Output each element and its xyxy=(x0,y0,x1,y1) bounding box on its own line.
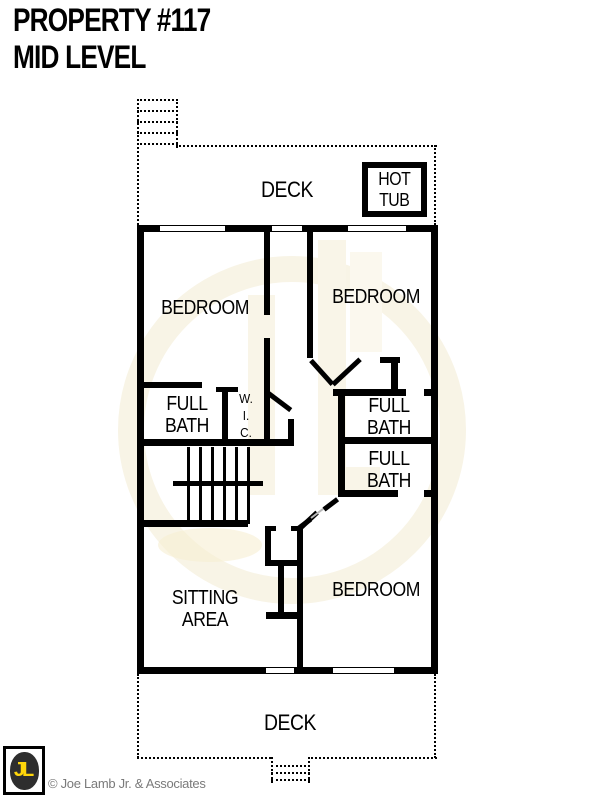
deck-stairs-tread xyxy=(137,121,178,123)
deck-bottom-edge xyxy=(137,757,271,759)
page-title: PROPERTY #117 MID LEVEL xyxy=(13,2,210,76)
bedroom-left-label: BEDROOM xyxy=(156,297,255,319)
outer-wall-left xyxy=(137,225,144,674)
deck-stairs-tread xyxy=(137,110,178,112)
window xyxy=(348,225,406,232)
deck-bottom-stairs-tread xyxy=(271,772,310,774)
stair-rail xyxy=(173,481,263,486)
deck-bottom-label: DECK xyxy=(257,711,324,736)
level-title: MID LEVEL xyxy=(13,39,210,76)
deck-stairs-tread xyxy=(137,132,178,134)
deck-top-right-edge xyxy=(434,145,436,225)
window xyxy=(160,225,225,232)
deck-top-left-edge xyxy=(137,99,139,225)
wall-bedroom-closet-pillar xyxy=(391,357,398,389)
deck-bottom-left-edge xyxy=(137,674,139,758)
hot-tub: HOT TUB xyxy=(362,162,427,217)
outer-wall-right xyxy=(431,225,438,674)
deck-bottom-stairs-tread xyxy=(271,779,310,781)
wall-bath-left-bottom xyxy=(140,439,294,446)
deck-bottom-edge xyxy=(311,757,437,759)
deck-stairs-tread xyxy=(137,99,178,101)
joe-lamb-logo: JL xyxy=(3,746,45,795)
property-title: PROPERTY #117 xyxy=(13,2,210,39)
deck-top-label: DECK xyxy=(256,178,318,203)
logo-oval: JL xyxy=(10,752,39,790)
full-bath-left-label: FULL BATH xyxy=(149,393,225,438)
deck-bottom-stairs-tread xyxy=(271,765,310,767)
hot-tub-label: HOT TUB xyxy=(378,169,410,210)
deck-bottom-right-edge xyxy=(434,674,436,758)
bedroom-right-label: BEDROOM xyxy=(327,286,426,308)
deck-top-edge xyxy=(176,145,437,147)
copyright-text: © Joe Lamb Jr. & Associates xyxy=(48,776,206,791)
wall-bath-left-top xyxy=(140,382,202,388)
floorplan-page: PROPERTY #117 MID LEVEL HOT TUB xyxy=(0,0,600,800)
wic-label: W. I. C. xyxy=(233,391,258,442)
wall-closet-t-horizontal xyxy=(266,612,300,619)
wall-bedroom-divider-upper xyxy=(264,232,270,315)
watermark-tint xyxy=(158,528,262,562)
wall-wic-door-stub xyxy=(288,419,294,439)
wall-sitting-bedroom-divider xyxy=(297,566,303,667)
window xyxy=(333,667,394,674)
full-bath-right-upper-label: FULL BATH xyxy=(350,395,427,440)
logo-initials: JL xyxy=(14,759,34,782)
sitting-area-label: SITTING AREA xyxy=(157,587,254,632)
window xyxy=(272,225,302,232)
bedroom-bottom-label: BEDROOM xyxy=(327,579,426,601)
deck-stairs-edge xyxy=(176,99,178,148)
wall-bedroom-right xyxy=(307,232,313,358)
full-bath-right-lower-label: FULL BATH xyxy=(350,448,427,493)
wall-stairs-bottom xyxy=(140,520,248,527)
window xyxy=(266,667,294,674)
deck-stairs-tread xyxy=(137,143,178,145)
